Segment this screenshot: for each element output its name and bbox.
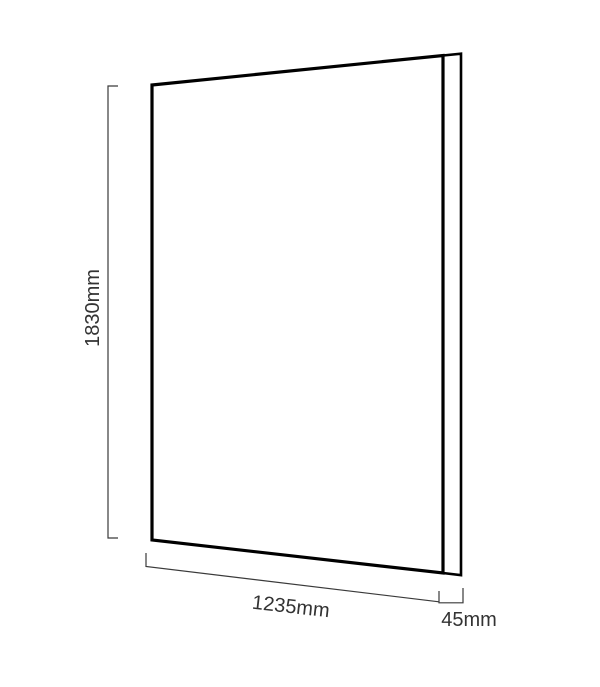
panel-front-face	[152, 56, 443, 574]
panel-diagram: 1830mm 1235mm 45mm	[0, 0, 600, 687]
width-dimension-label: 1235mm	[251, 592, 331, 623]
panel-side-face	[443, 54, 461, 576]
thickness-dimension-line	[439, 588, 463, 603]
thickness-dimension-label: 45mm	[441, 609, 497, 631]
height-dimension-line	[108, 86, 118, 538]
diagram-canvas: 1830mm 1235mm 45mm	[0, 0, 600, 687]
height-dimension-label: 1830mm	[82, 269, 104, 347]
